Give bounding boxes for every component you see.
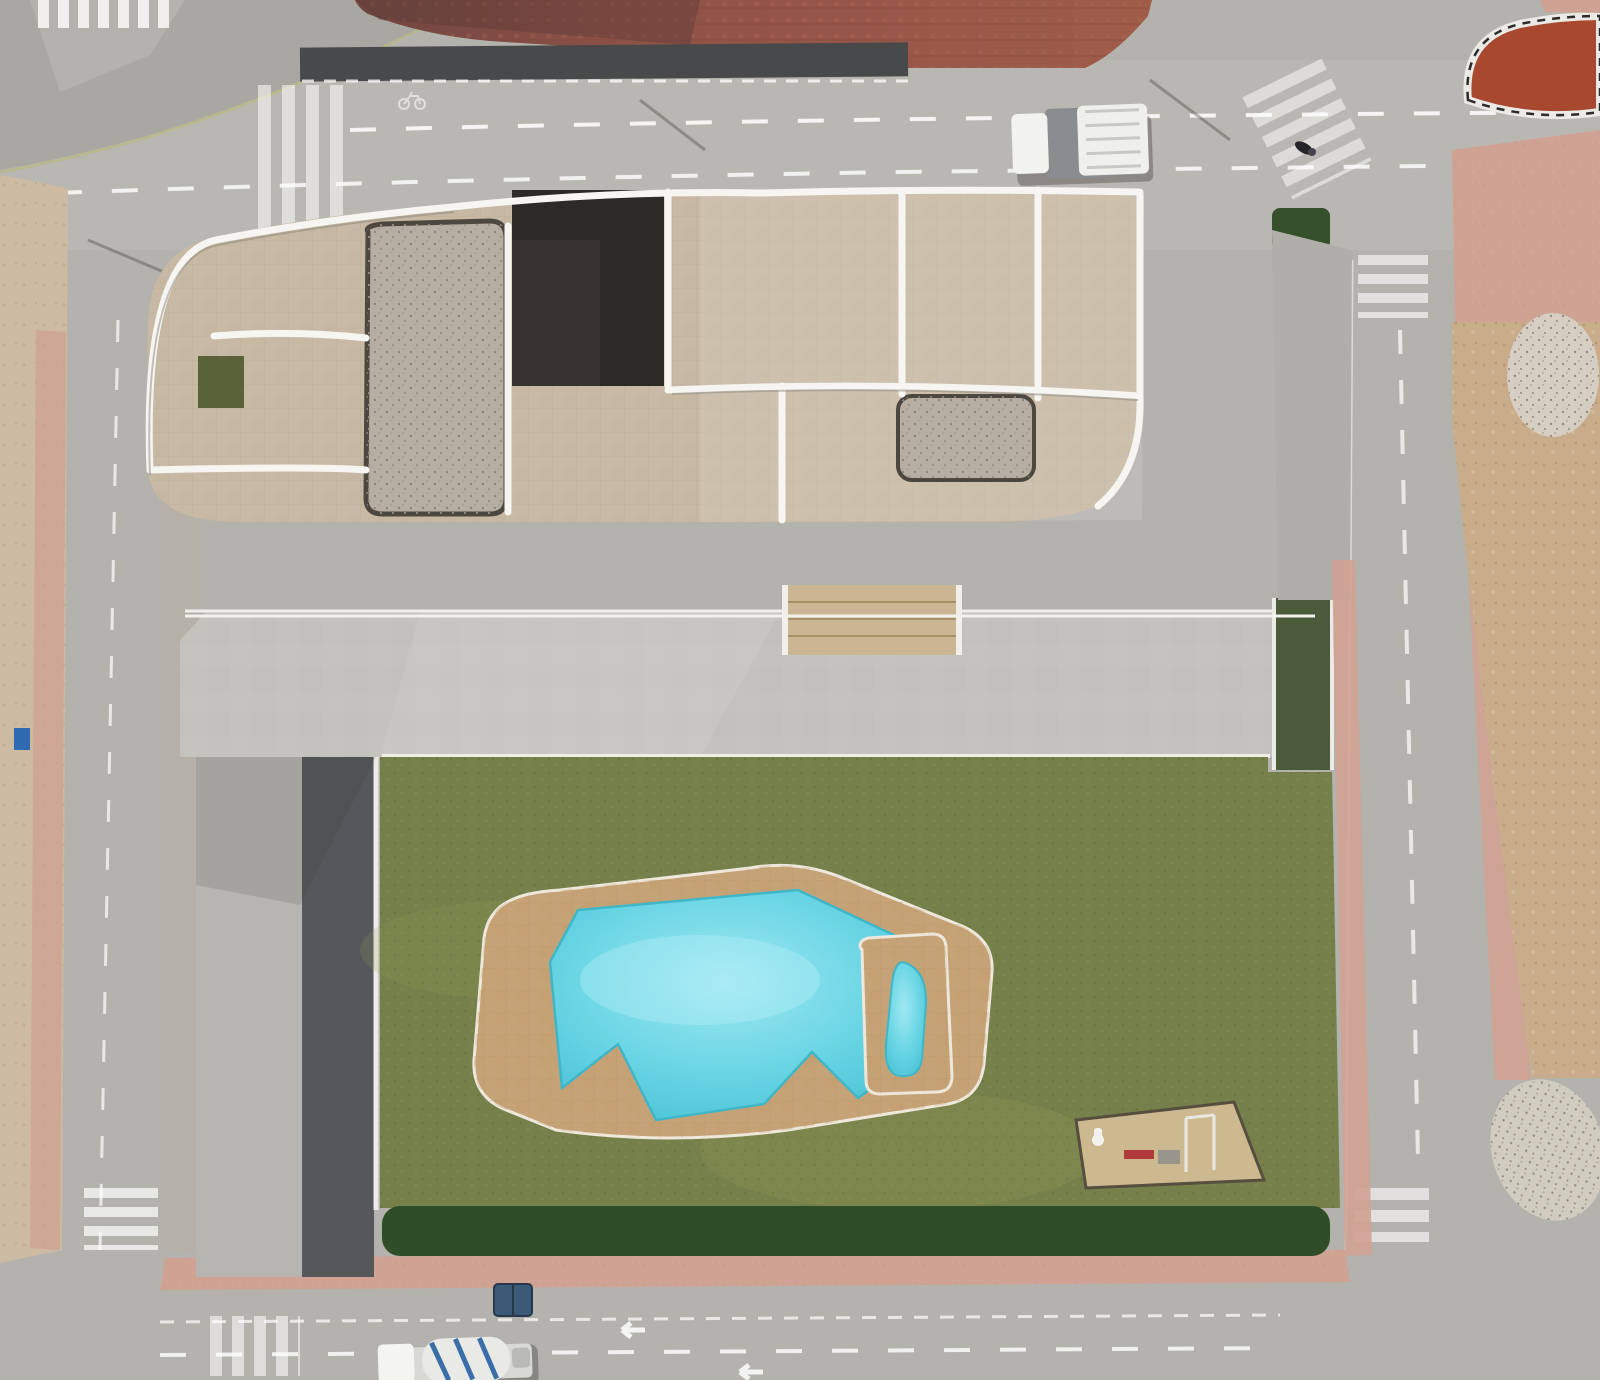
hedge-strip-bottom — [382, 1206, 1330, 1256]
rubble-texture — [1507, 313, 1599, 437]
pink-strip-left — [30, 330, 66, 1250]
gravel-roof-small-texture — [898, 396, 1034, 480]
gravel-roof-texture — [366, 221, 506, 514]
apartment-building-roof — [148, 190, 1144, 522]
garage-ramp — [1274, 598, 1332, 770]
playground-bench-red — [1124, 1150, 1154, 1159]
pool-area — [474, 865, 992, 1138]
pink-corner-top-right — [1540, 0, 1600, 13]
playground-box — [1158, 1150, 1180, 1164]
sidewalk-east — [1272, 230, 1352, 600]
plunge-pool — [886, 962, 926, 1076]
dumpster — [494, 1284, 532, 1316]
aerial-render-residential-complex — [0, 0, 1600, 1380]
pink-sidewalk-texture — [1452, 130, 1600, 322]
parking-lane-top — [300, 42, 908, 81]
water-sheen — [580, 935, 820, 1025]
roof-garden-west — [198, 356, 244, 408]
aerial-scene — [0, 0, 1600, 1380]
box-truck — [1011, 103, 1154, 186]
blue-bins — [14, 728, 30, 750]
entrance-steps — [782, 585, 962, 655]
